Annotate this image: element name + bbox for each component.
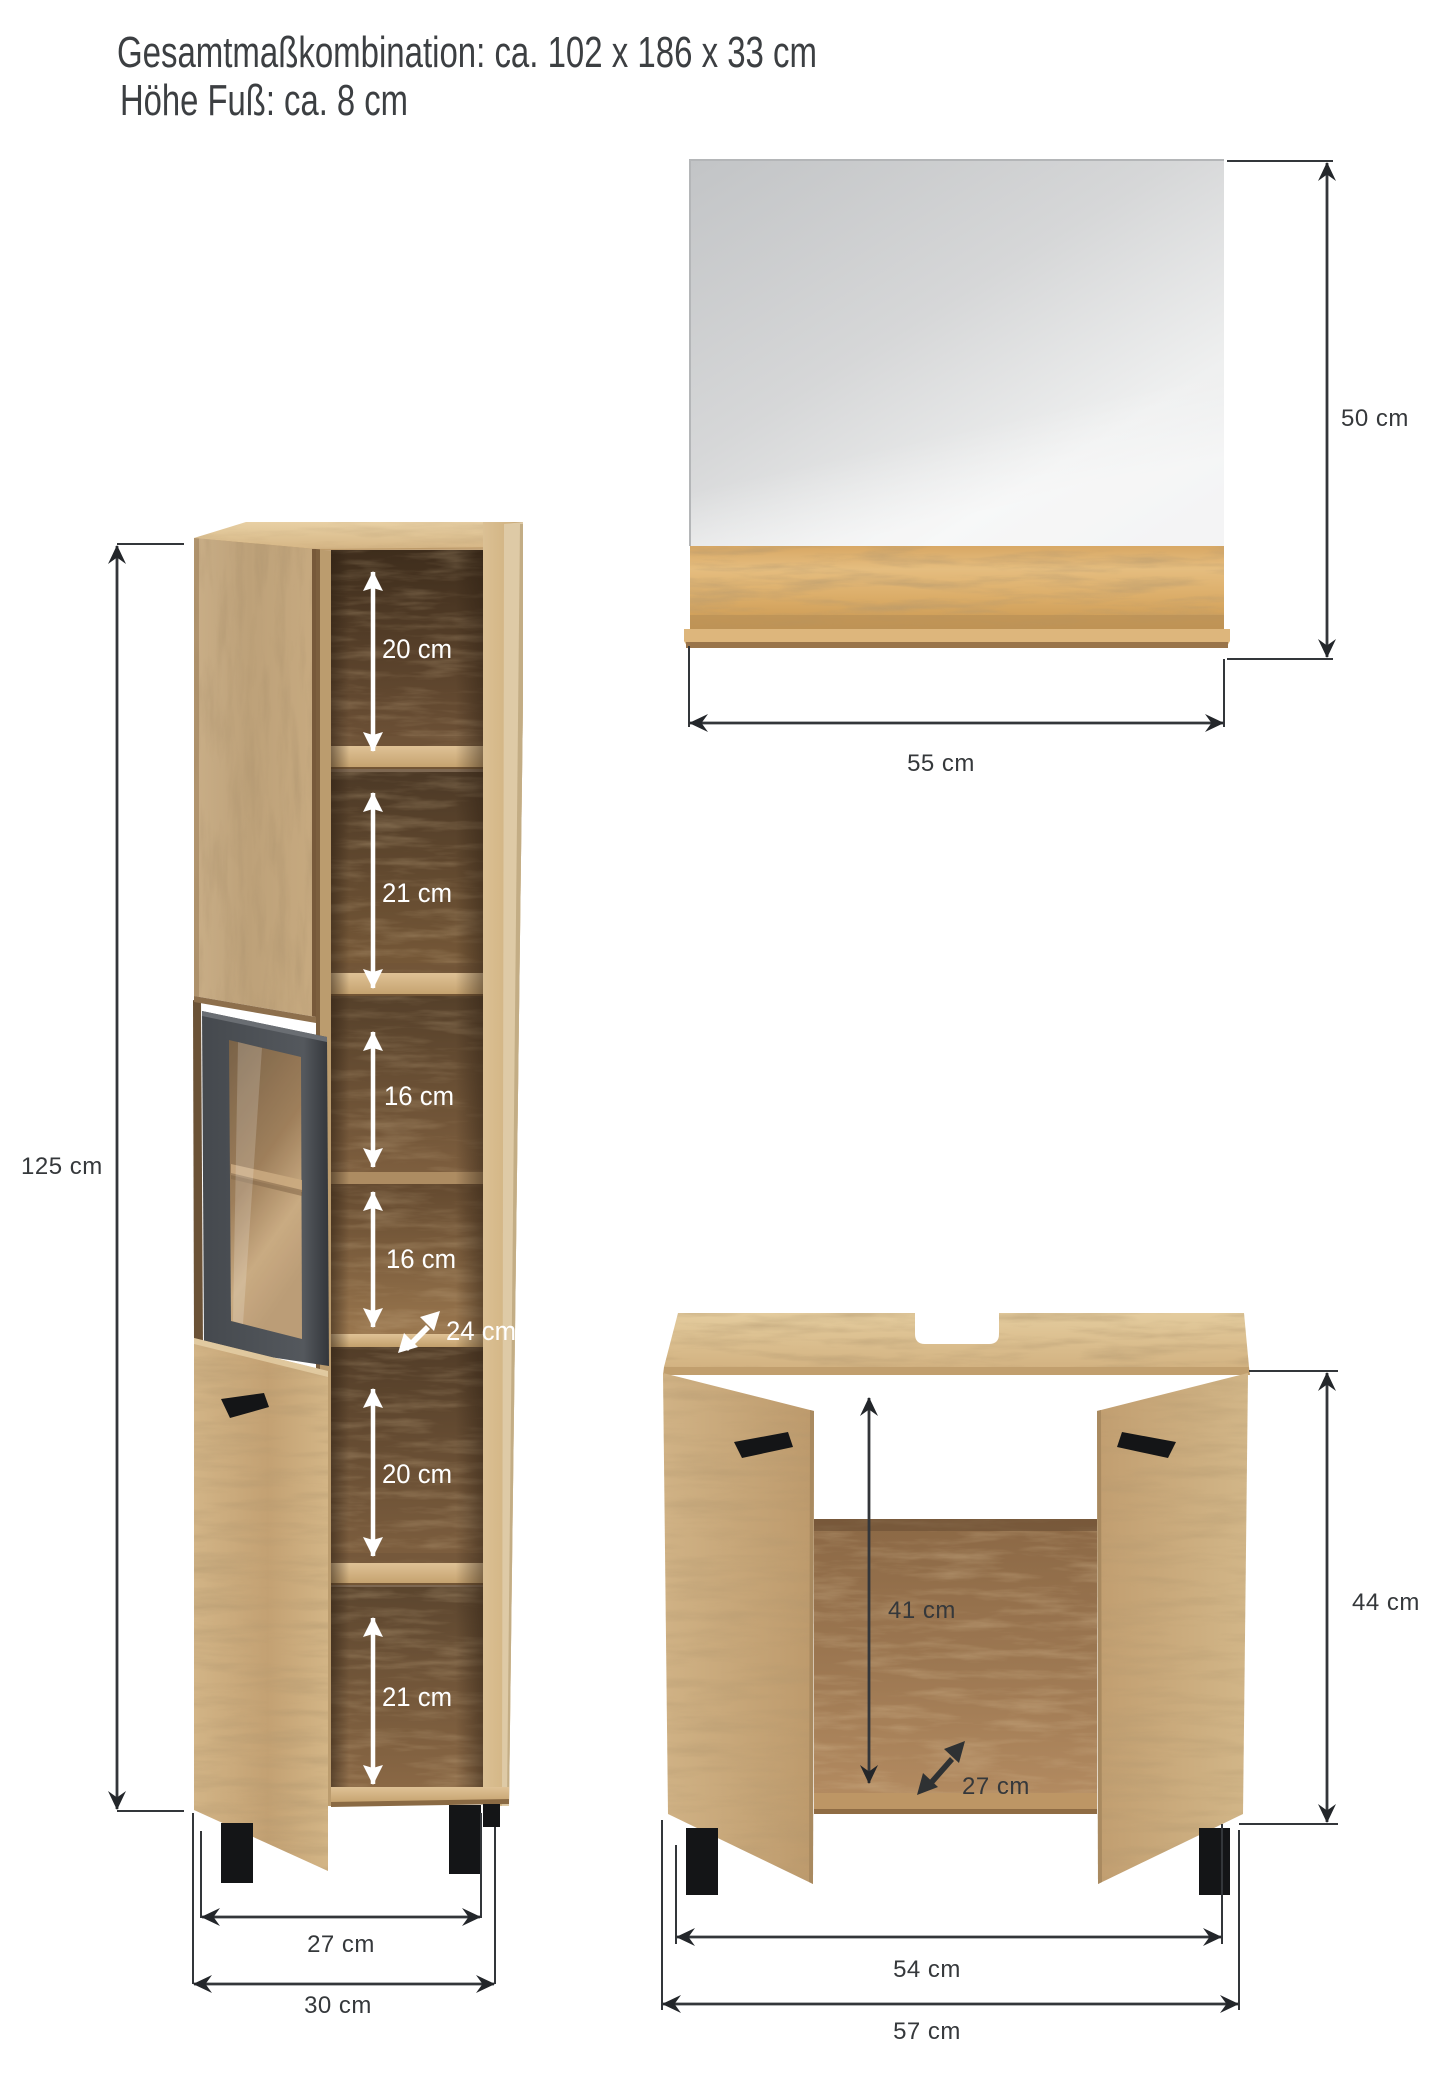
svg-text:30 cm: 30 cm — [304, 1992, 372, 2019]
svg-text:Höhe Fuß: ca. 8 cm: Höhe Fuß: ca. 8 cm — [120, 76, 408, 125]
svg-text:44 cm: 44 cm — [1352, 1589, 1420, 1616]
svg-text:Gesamtmaßkombination: ca. 102: Gesamtmaßkombination: ca. 102 x 186 x 33… — [117, 28, 817, 77]
svg-text:41 cm: 41 cm — [888, 1597, 956, 1624]
svg-text:27 cm: 27 cm — [962, 1773, 1030, 1800]
svg-text:24 cm: 24 cm — [446, 1316, 516, 1346]
svg-text:21 cm: 21 cm — [382, 878, 452, 908]
svg-text:27 cm: 27 cm — [307, 1931, 375, 1958]
svg-text:20 cm: 20 cm — [382, 1459, 452, 1489]
svg-text:20 cm: 20 cm — [382, 634, 452, 664]
svg-text:55 cm: 55 cm — [907, 750, 975, 777]
svg-text:21 cm: 21 cm — [382, 1682, 452, 1712]
svg-text:16 cm: 16 cm — [384, 1081, 454, 1111]
svg-text:16 cm: 16 cm — [386, 1244, 456, 1274]
svg-text:125 cm: 125 cm — [21, 1153, 103, 1180]
svg-text:54 cm: 54 cm — [893, 1956, 961, 1983]
svg-text:57 cm: 57 cm — [893, 2018, 961, 2045]
svg-text:50 cm: 50 cm — [1341, 405, 1409, 432]
